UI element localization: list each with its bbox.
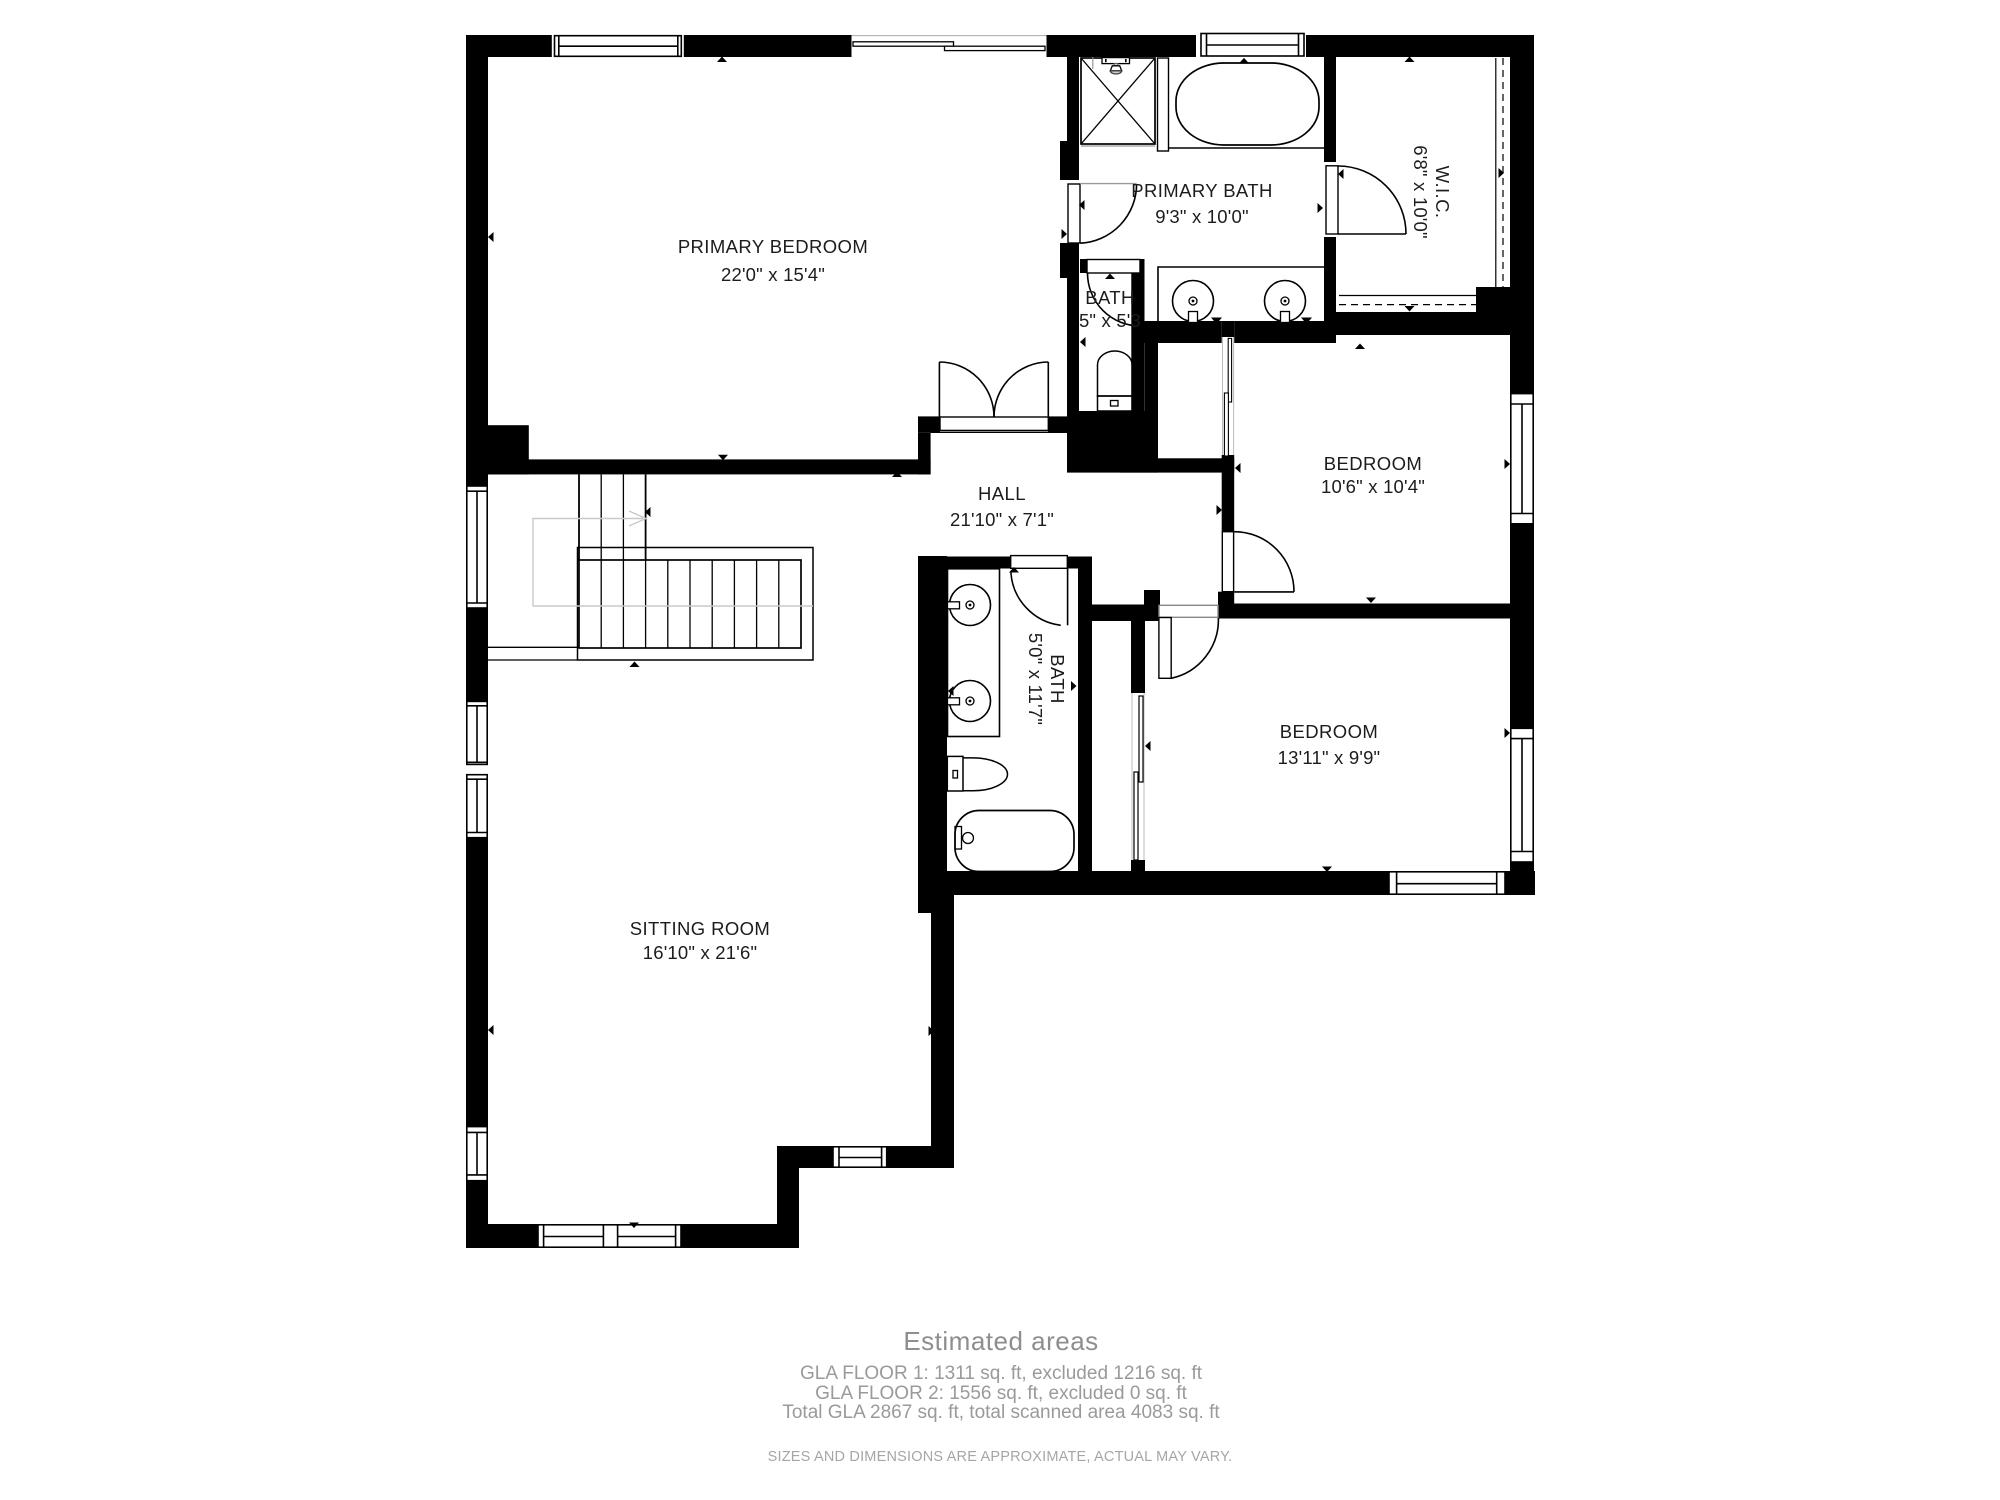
svg-text:9'3" x 10'0": 9'3" x 10'0"	[1155, 206, 1249, 227]
svg-text:5" x 5'3: 5" x 5'3	[1079, 310, 1141, 331]
svg-text:BATH: BATH	[1047, 654, 1068, 704]
svg-text:PRIMARY BATH: PRIMARY BATH	[1131, 180, 1273, 201]
svg-text:BATH: BATH	[1085, 287, 1135, 308]
svg-text:22'0" x 15'4": 22'0" x 15'4"	[721, 264, 825, 285]
svg-text:21'10" x 7'1": 21'10" x 7'1"	[950, 509, 1054, 530]
svg-text:SIZES AND DIMENSIONS ARE APPRO: SIZES AND DIMENSIONS ARE APPROXIMATE, AC…	[768, 1449, 1233, 1465]
svg-text:16'10" x 21'6": 16'10" x 21'6"	[643, 942, 758, 963]
svg-text:GLA FLOOR 2: 1556 sq. ft, excl: GLA FLOOR 2: 1556 sq. ft, excluded 0 sq.…	[815, 1383, 1187, 1404]
svg-text:BEDROOM: BEDROOM	[1280, 721, 1378, 742]
svg-text:SITTING ROOM: SITTING ROOM	[630, 918, 770, 939]
svg-text:GLA FLOOR 1: 1311 sq. ft, excl: GLA FLOOR 1: 1311 sq. ft, excluded 1216 …	[800, 1363, 1203, 1384]
svg-text:13'11" x 9'9": 13'11" x 9'9"	[1278, 747, 1381, 768]
svg-text:Estimated areas: Estimated areas	[903, 1326, 1098, 1356]
svg-text:10'6" x 10'4": 10'6" x 10'4"	[1321, 476, 1425, 497]
svg-text:Total GLA 2867 sq. ft, total s: Total GLA 2867 sq. ft, total scanned are…	[782, 1402, 1220, 1423]
svg-text:PRIMARY BEDROOM: PRIMARY BEDROOM	[678, 236, 868, 257]
svg-text:BEDROOM: BEDROOM	[1324, 453, 1422, 474]
svg-text:HALL: HALL	[978, 483, 1026, 504]
svg-text:5'0" x 11'7": 5'0" x 11'7"	[1025, 633, 1046, 725]
svg-text:W.I.C.: W.I.C.	[1432, 166, 1453, 219]
svg-text:6'8" x 10'0": 6'8" x 10'0"	[1410, 145, 1431, 239]
